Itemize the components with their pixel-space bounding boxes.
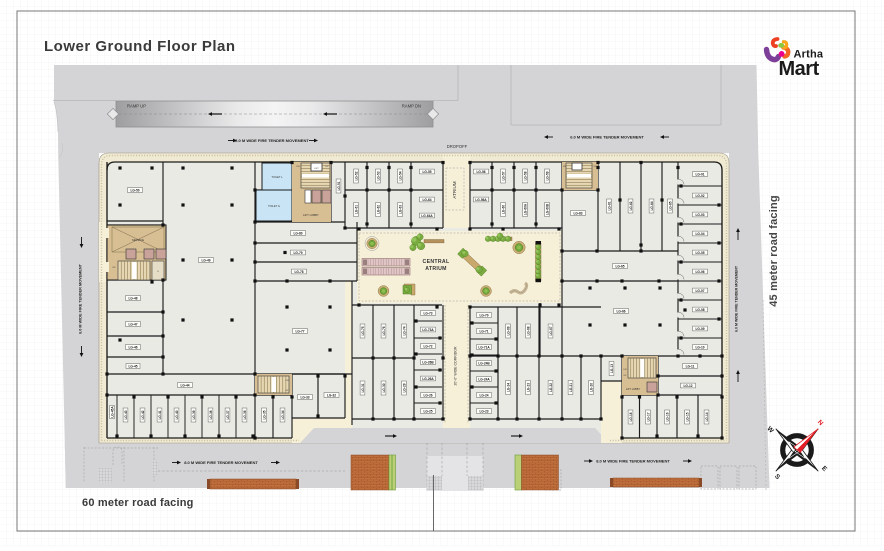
svg-text:LG-60A: LG-60A	[523, 203, 527, 215]
svg-text:LG-60: LG-60	[501, 205, 505, 214]
svg-text:LG-84: LG-84	[650, 201, 654, 210]
svg-text:TOILET G: TOILET G	[268, 204, 280, 208]
svg-text:ATRIUM: ATRIUM	[452, 181, 457, 198]
svg-text:LG-56A: LG-56A	[475, 198, 487, 202]
svg-text:LG-76: LG-76	[382, 326, 386, 335]
svg-text:LG-25: LG-25	[423, 409, 432, 413]
svg-text:LG-34: LG-34	[281, 410, 285, 419]
svg-text:CENTRAL: CENTRAL	[423, 259, 450, 265]
svg-text:LG-17: LG-17	[646, 412, 650, 421]
svg-text:LG-57: LG-57	[501, 171, 505, 180]
svg-text:LG-23: LG-23	[526, 383, 530, 392]
svg-text:LG-58: LG-58	[523, 171, 527, 180]
svg-text:45 meter road facing: 45 meter road facing	[768, 195, 780, 307]
svg-text:LG-11: LG-11	[686, 364, 695, 368]
svg-text:LG-71A: LG-71A	[478, 345, 490, 349]
svg-text:6.0 M WIDE FIRE TENDER MOVEMEN: 6.0 M WIDE FIRE TENDER MOVEMENT	[735, 265, 739, 332]
svg-text:LG-10: LG-10	[695, 345, 704, 349]
svg-text:LG-24B: LG-24B	[478, 361, 490, 365]
svg-text:LG-24A: LG-24A	[478, 377, 490, 381]
svg-text:60 meter road facing: 60 meter road facing	[82, 497, 194, 509]
svg-text:LG-04: LG-04	[695, 232, 704, 236]
svg-text:LIFT: LIFT	[314, 168, 319, 170]
svg-text:LG-03: LG-03	[695, 213, 704, 217]
svg-text:LG-74: LG-74	[402, 326, 406, 335]
svg-text:LG-40: LG-40	[175, 410, 179, 419]
svg-text:LG-85: LG-85	[668, 201, 672, 210]
svg-text:LG-73: LG-73	[423, 311, 432, 315]
svg-text:LG-32: LG-32	[327, 393, 336, 397]
svg-text:6.0 M WIDE FIRE TENDER MOVEMEN: 6.0 M WIDE FIRE TENDER MOVEMENT	[570, 135, 644, 140]
svg-text:LG-09: LG-09	[695, 327, 704, 331]
svg-text:LG-60B: LG-60B	[545, 203, 549, 215]
svg-text:LG-07: LG-07	[695, 289, 704, 293]
svg-text:LG-39: LG-39	[192, 410, 196, 419]
svg-text:LG-14: LG-14	[705, 412, 709, 421]
svg-text:RAMP DN: RAMP DN	[402, 104, 421, 109]
svg-text:UP: UP	[112, 267, 116, 269]
svg-text:LG-12: LG-12	[683, 384, 692, 388]
svg-text:LG-67: LG-67	[549, 326, 553, 335]
svg-text:LG-64: LG-64	[422, 198, 431, 202]
svg-text:LG-36: LG-36	[243, 410, 247, 419]
svg-text:LG-55: LG-55	[422, 170, 431, 174]
svg-text:ATRIUM: ATRIUM	[425, 266, 447, 272]
svg-text:LG-13: LG-13	[610, 364, 614, 373]
svg-text:LG-06: LG-06	[695, 270, 704, 274]
svg-text:LG-78: LG-78	[294, 270, 303, 274]
svg-text:LG-48: LG-48	[128, 296, 137, 300]
svg-text:LG-20: LG-20	[589, 383, 593, 392]
svg-text:LG-23: LG-23	[479, 409, 488, 413]
svg-text:LG-41: LG-41	[158, 410, 162, 419]
svg-text:LG-38: LG-38	[209, 410, 213, 419]
svg-text:LG-35: LG-35	[262, 410, 266, 419]
svg-text:RAMP UP: RAMP UP	[127, 104, 146, 109]
svg-text:LG-75: LG-75	[361, 326, 365, 335]
svg-text:LG-73A: LG-73A	[422, 328, 434, 332]
svg-text:LG-18: LG-18	[629, 412, 633, 421]
svg-text:LG-43: LG-43	[124, 410, 128, 419]
svg-text:LIFT LOBBY: LIFT LOBBY	[626, 388, 640, 391]
svg-text:LG-70: LG-70	[479, 313, 488, 317]
svg-text:LG-01: LG-01	[695, 172, 704, 176]
svg-text:LG-02: LG-02	[695, 194, 704, 198]
svg-text:LG-30: LG-30	[382, 383, 386, 392]
svg-text:8.0 M WIDE FIRE TENDER MOVEMEN: 8.0 M WIDE FIRE TENDER MOVEMENT	[596, 459, 670, 464]
svg-text:LG-08: LG-08	[695, 308, 704, 312]
svg-text:LG-62: LG-62	[376, 205, 380, 214]
svg-text:LG-79: LG-79	[293, 251, 302, 255]
svg-text:LG-45A: LG-45A	[110, 406, 114, 418]
svg-text:LG-80: LG-80	[293, 231, 302, 235]
svg-text:LG-72: LG-72	[423, 344, 432, 348]
svg-text:LG-45: LG-45	[128, 364, 137, 368]
svg-text:LG-22: LG-22	[549, 383, 553, 392]
svg-text:LG-31: LG-31	[361, 383, 365, 392]
svg-text:LG-77: LG-77	[295, 329, 304, 333]
svg-text:LG-42: LG-42	[141, 410, 145, 419]
svg-text:DN: DN	[296, 166, 300, 168]
svg-text:LG-64A: LG-64A	[421, 214, 433, 218]
svg-text:LG-82: LG-82	[629, 201, 633, 210]
svg-text:LG-63: LG-63	[398, 205, 402, 214]
svg-text:LG-33: LG-33	[300, 395, 309, 399]
svg-text:LG-52: LG-52	[354, 171, 358, 180]
svg-text:LG-81: LG-81	[607, 201, 611, 210]
svg-text:LG-71: LG-71	[479, 329, 488, 333]
svg-text:6.0 M WIDE FIRE TENDER MOVEMEN: 6.0 M WIDE FIRE TENDER MOVEMENT	[79, 263, 83, 334]
svg-text:LG-51: LG-51	[337, 181, 341, 190]
svg-text:LG-49: LG-49	[201, 258, 210, 262]
svg-text:LG-66: LG-66	[616, 309, 625, 313]
svg-text:LG-50: LG-50	[130, 188, 139, 192]
svg-text:LG-05: LG-05	[695, 251, 704, 255]
svg-text:LG-61: LG-61	[354, 205, 358, 214]
svg-text:20'-0" WIDE CORRIDOR: 20'-0" WIDE CORRIDOR	[454, 346, 458, 386]
svg-text:LG-68: LG-68	[526, 326, 530, 335]
svg-text:LIFT LOBBY: LIFT LOBBY	[303, 213, 319, 217]
svg-text:LG-21: LG-21	[569, 383, 573, 392]
svg-text:SERVICE: SERVICE	[132, 238, 144, 242]
svg-text:LG-69: LG-69	[506, 326, 510, 335]
svg-text:LG-59: LG-59	[545, 171, 549, 180]
svg-text:LG-26B: LG-26B	[422, 360, 434, 364]
svg-text:LG-29: LG-29	[402, 383, 406, 392]
svg-text:LG-54: LG-54	[398, 171, 402, 180]
svg-text:LG-26A: LG-26A	[422, 377, 434, 381]
svg-text:LG-15: LG-15	[685, 412, 689, 421]
svg-text:LG-37: LG-37	[226, 410, 230, 419]
svg-text:LG-24: LG-24	[479, 393, 488, 397]
svg-text:LG-16: LG-16	[665, 412, 669, 421]
svg-text:LG-65: LG-65	[615, 264, 624, 268]
svg-text:LG-24: LG-24	[506, 383, 510, 392]
svg-text:LG-83: LG-83	[573, 211, 582, 215]
svg-text:6.0 M WIDE FIRE TENDER MOVEMEN: 6.0 M WIDE FIRE TENDER MOVEMENT	[235, 138, 309, 143]
svg-text:UP: UP	[325, 166, 329, 168]
svg-text:Mart: Mart	[779, 58, 820, 80]
svg-text:DROPOFF: DROPOFF	[447, 144, 468, 149]
svg-text:LG-56: LG-56	[476, 170, 485, 174]
svg-text:LG-44: LG-44	[180, 383, 189, 387]
svg-text:8.0 M WIDE FIRE TENDER MOVEMEN: 8.0 M WIDE FIRE TENDER MOVEMENT	[184, 460, 258, 465]
svg-text:LG-53: LG-53	[376, 171, 380, 180]
svg-text:TOILET L: TOILET L	[271, 175, 283, 179]
svg-text:Lower Ground Floor Plan: Lower Ground Floor Plan	[44, 38, 236, 55]
svg-text:LG-26: LG-26	[423, 393, 432, 397]
svg-text:LG-46: LG-46	[128, 345, 137, 349]
svg-text:LG-47: LG-47	[128, 322, 137, 326]
